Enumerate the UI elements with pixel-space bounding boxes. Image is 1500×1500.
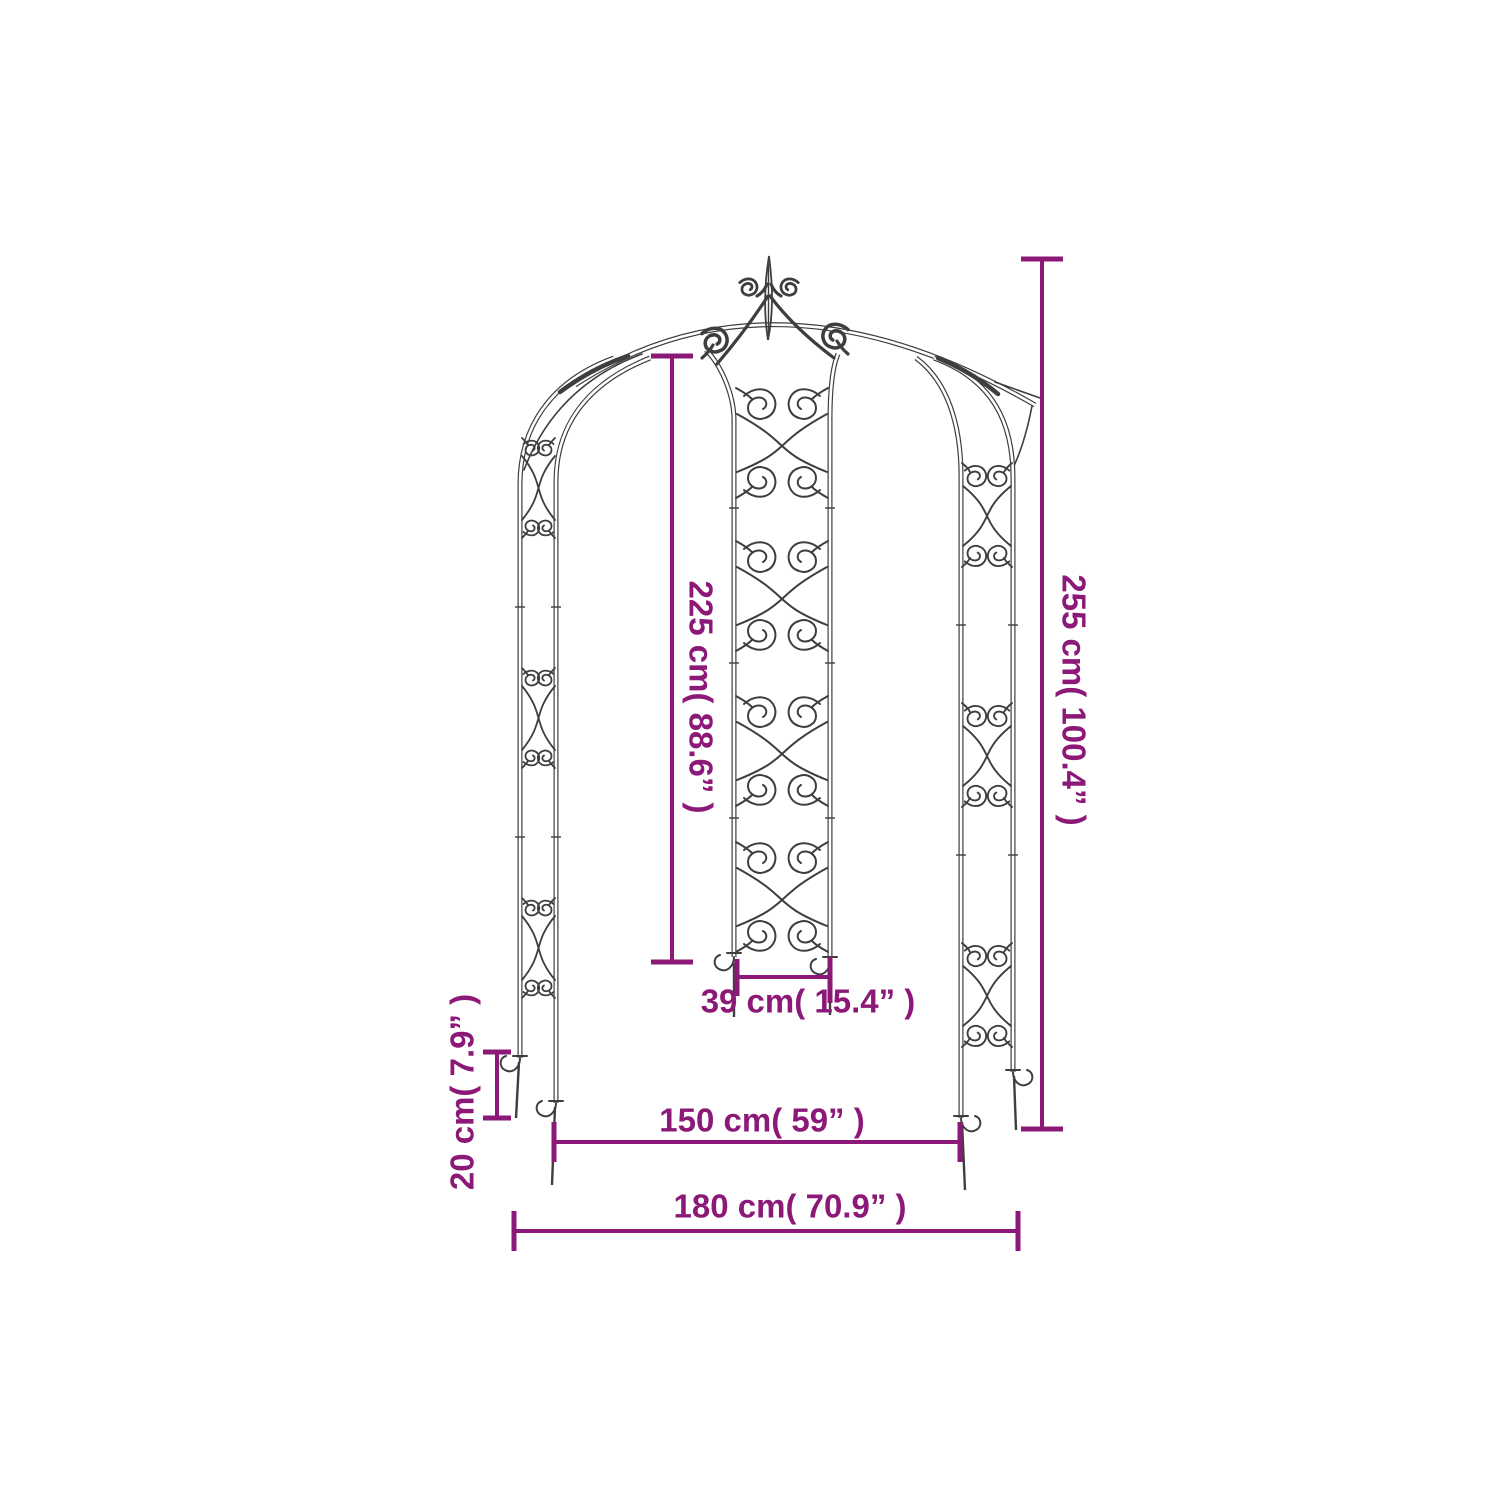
ground-stake-label: 20 cm( 7.9” ): [444, 994, 481, 1190]
dome-ring: [575, 325, 1035, 405]
dimension-inner-width: 150 cm( 59” ): [554, 1102, 960, 1163]
total-height-label: 255 cm( 100.4” ): [1056, 574, 1093, 825]
inner-height-label: 225 cm( 88.6” ): [683, 581, 720, 814]
dimension-ground-stake: 20 cm( 7.9” ): [444, 994, 512, 1190]
center-panel-rails: [706, 350, 838, 961]
panel-width-label: 39 cm( 15.4” ): [701, 983, 916, 1020]
arch-structure: [501, 256, 1040, 1190]
dimension-total-height: 255 cm( 100.4” ): [1021, 259, 1093, 1129]
dimension-inner-height: 225 cm( 88.6” ): [651, 356, 720, 962]
dimension-diagram: 225 cm( 88.6” ) 255 cm( 100.4” ) 39 cm( …: [0, 0, 1500, 1500]
inner-width-label: 150 cm( 59” ): [659, 1102, 864, 1139]
total-width-label: 180 cm( 70.9” ): [674, 1188, 907, 1225]
garden-arch-line-drawing: 225 cm( 88.6” ) 255 cm( 100.4” ) 39 cm( …: [0, 0, 1500, 1500]
finial: [717, 256, 834, 364]
dimension-total-width: 180 cm( 70.9” ): [514, 1188, 1018, 1252]
right-panel-scrollwork: [962, 463, 1012, 1047]
right-shoulder-arc: [1012, 406, 1032, 470]
center-panel-scrollwork: [736, 388, 828, 952]
left-panel-scrollwork: [522, 438, 555, 998]
